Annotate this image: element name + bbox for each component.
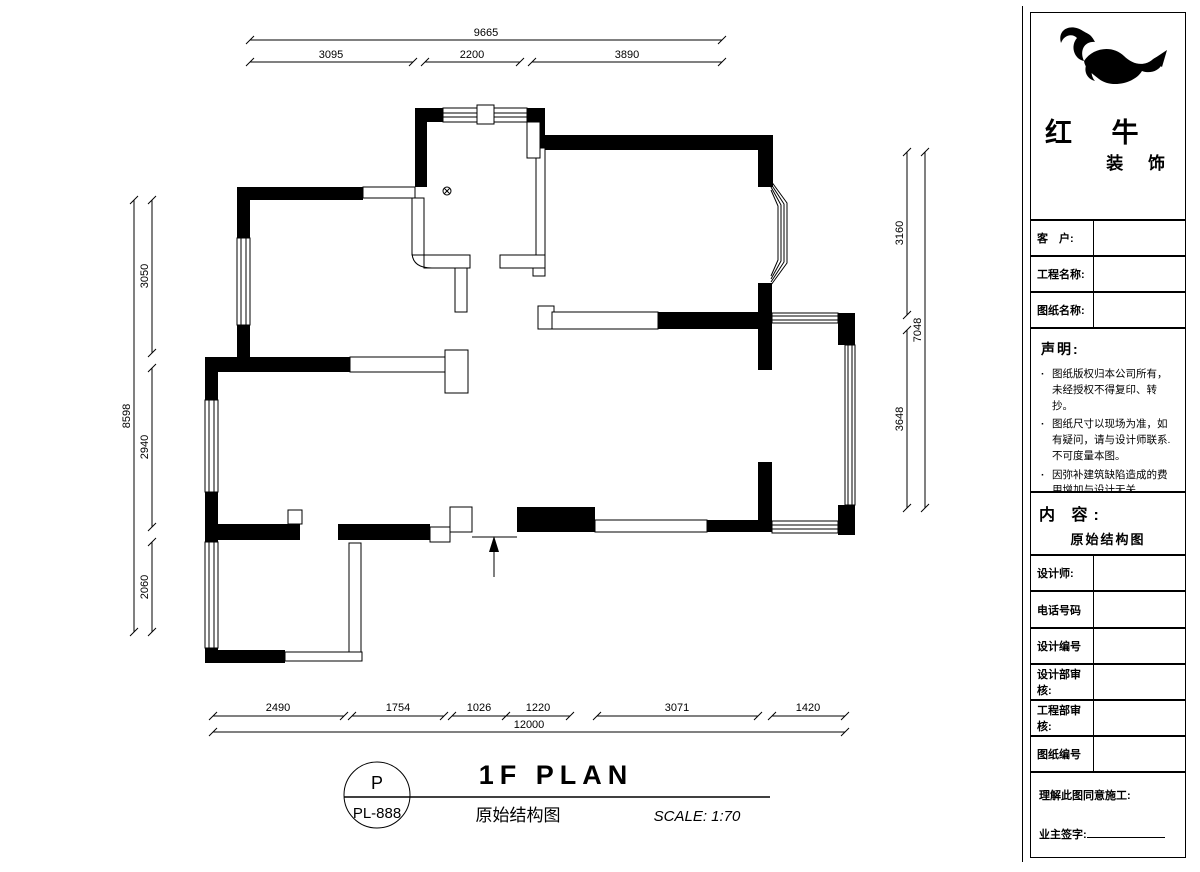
field-label: 图纸名称: — [1031, 293, 1094, 327]
content-value: 原始结构图 — [1031, 529, 1185, 548]
partition-walls — [285, 122, 707, 661]
field-row-designer: 设计师: — [1030, 555, 1186, 591]
plan-title: 1F PLAN — [479, 760, 634, 790]
ref-letter: P — [371, 773, 383, 793]
brand-box: 红 牛 装 饰 — [1030, 12, 1186, 220]
load-bearing-walls — [205, 108, 855, 663]
dim-label: 1026 — [467, 702, 491, 714]
title-block: P PL-888 1F PLAN 原始结构图 SCALE: 1:70 — [353, 760, 741, 825]
dim-label: 9665 — [474, 27, 498, 39]
field-row-design-audit: 设计部审核: — [1030, 664, 1186, 700]
brand-logo-bull-icon — [1049, 21, 1169, 116]
entry-arrow — [472, 536, 517, 577]
floor-drain-icon — [443, 187, 451, 195]
content-title: 内 容: — [1031, 493, 1185, 525]
brand-name: 红 牛 — [1045, 111, 1155, 150]
field-row-phone: 电话号码 — [1030, 591, 1186, 628]
consent-text: 理解此图同意施工: — [1039, 787, 1177, 803]
notice-box: 声明: · 图纸版权归本公司所有，未经授权不得复印、转抄。 · 图纸尺寸以现场为… — [1030, 328, 1186, 492]
field-label: 图纸编号 — [1031, 737, 1094, 771]
notice-title: 声明: — [1041, 339, 1177, 359]
sheet-border-rule — [1022, 6, 1023, 862]
plan-subtitle: 原始结构图 — [476, 806, 561, 825]
window-mullion — [477, 105, 494, 124]
drawing-sheet: { "dims": { "top_total": "9665", "top_se… — [0, 0, 1200, 872]
ref-code: PL-888 — [353, 805, 401, 822]
signature-line — [1087, 825, 1165, 838]
dim-label: 3095 — [319, 49, 343, 61]
dim-label: 2490 — [266, 702, 290, 714]
field-row-project-name: 工程名称: — [1030, 256, 1186, 292]
brand-subname: 装 饰 — [1106, 149, 1175, 174]
dim-label: 3160 — [894, 221, 906, 245]
field-label: 设计师: — [1031, 556, 1094, 590]
scale-label: SCALE: 1:70 — [654, 808, 741, 825]
field-label: 电话号码 — [1031, 592, 1094, 627]
dim-label: 12000 — [514, 719, 545, 731]
dim-label: 3648 — [894, 407, 906, 431]
dim-label: 3050 — [139, 264, 151, 288]
field-label: 工程部审核: — [1031, 701, 1094, 735]
dim-label: 3890 — [615, 49, 639, 61]
dim-label: 2200 — [460, 49, 484, 61]
dim-label: 1420 — [796, 702, 820, 714]
dim-label: 8598 — [121, 404, 133, 428]
dim-label: 1220 — [526, 702, 550, 714]
dim-label: 2060 — [139, 575, 151, 599]
owner-signature-label: 业主签字: — [1039, 829, 1087, 841]
notice-item: · 图纸版权归本公司所有，未经授权不得复印、转抄。 — [1041, 367, 1177, 414]
signature-box: 理解此图同意施工: 业主签字: — [1030, 772, 1186, 858]
notice-item: · 图纸尺寸以现场为准，如有疑问，请与设计师联系.不可度量本图。 — [1041, 417, 1177, 464]
dim-label: 7048 — [912, 318, 924, 342]
floor-plan-canvas: 9665 3095 2200 3890 8598 3050 2940 2060 … — [0, 0, 1200, 872]
field-row-client: 客 户: — [1030, 220, 1186, 256]
field-row-design-no: 设计编号 — [1030, 628, 1186, 664]
field-label: 客 户: — [1031, 221, 1094, 255]
field-row-engineering-audit: 工程部审核: — [1030, 700, 1186, 736]
field-label: 工程名称: — [1031, 257, 1094, 291]
field-row-drawing-name: 图纸名称: — [1030, 292, 1186, 328]
bay-window — [771, 181, 787, 285]
dim-label: 1754 — [386, 702, 410, 714]
dim-label: 2940 — [139, 435, 151, 459]
field-label: 设计部审核: — [1031, 665, 1094, 699]
content-box: 内 容: 原始结构图 — [1030, 492, 1186, 555]
dim-label: 3071 — [665, 702, 689, 714]
dimension-labels: 9665 3095 2200 3890 8598 3050 2940 2060 … — [121, 27, 924, 731]
field-row-drawing-no: 图纸编号 — [1030, 736, 1186, 772]
windows — [205, 105, 855, 648]
field-label: 设计编号 — [1031, 629, 1094, 663]
